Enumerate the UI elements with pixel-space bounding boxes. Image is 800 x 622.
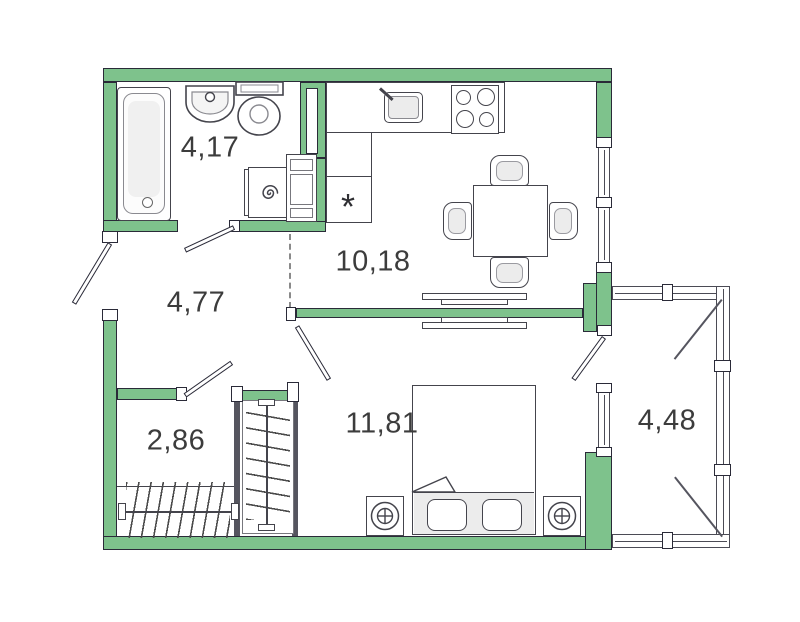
wall-wardrobe-top xyxy=(117,388,178,400)
blanket-fold xyxy=(410,474,458,494)
balcony-glazing-right xyxy=(716,286,730,548)
cabinet-shelf xyxy=(290,208,313,218)
bathtub-basin xyxy=(128,101,160,197)
bathtub-drain xyxy=(142,197,153,208)
cabinet-shelf xyxy=(290,174,313,205)
pillow xyxy=(427,499,467,531)
door-post xyxy=(286,307,296,321)
hangers xyxy=(126,482,230,538)
room-area-label-hallway: 4,77 xyxy=(167,287,225,320)
table-lamp-icon xyxy=(368,499,402,533)
dining-table xyxy=(473,185,548,257)
window-post xyxy=(596,137,612,148)
chair-seat xyxy=(448,208,466,234)
table-lamp-icon xyxy=(545,499,579,533)
stove-burner xyxy=(479,112,494,127)
room-area-label-balcony: 4,48 xyxy=(638,405,696,438)
wall-right-mid xyxy=(596,272,612,332)
rod-bracket xyxy=(258,524,275,531)
kitchen-window xyxy=(598,147,610,198)
window-post xyxy=(596,197,612,208)
wall-right-lower xyxy=(585,452,612,550)
room-area-label-bedroom: 11,81 xyxy=(346,408,419,441)
room-area-label-wardrobe: 2,86 xyxy=(147,425,205,458)
bedroom-window xyxy=(598,392,610,448)
washing-machine-door xyxy=(244,169,249,216)
glazing-post xyxy=(662,284,673,301)
ventilation-shaft xyxy=(306,88,318,154)
rod-bracket xyxy=(118,503,126,520)
radiator xyxy=(422,322,527,329)
room-area-label-bathroom: 4,17 xyxy=(181,132,239,165)
kitchen-window xyxy=(598,207,610,263)
wall-kitchen-bedroom-divider xyxy=(296,308,583,318)
wall-kitchen-left-strip xyxy=(316,158,326,222)
radiator xyxy=(441,299,508,305)
entrance-door-leaf xyxy=(72,242,112,305)
window-post xyxy=(596,383,612,393)
rod-bracket xyxy=(231,503,239,520)
toilet xyxy=(234,80,286,140)
stove-burner xyxy=(456,110,474,128)
washing-machine-drum-icon xyxy=(257,181,281,205)
wall-top xyxy=(103,68,612,82)
door-post xyxy=(102,231,118,243)
wall-right-upper xyxy=(596,82,612,140)
chair-seat xyxy=(496,161,523,181)
kitchen-unit-asterisk: * xyxy=(341,186,355,228)
door-post xyxy=(597,325,612,336)
glazing-post xyxy=(714,464,731,476)
cabinet-shelf xyxy=(290,159,313,171)
floor-plan: 4,17 4,77 10,18 2,86 11,81 4,48 * xyxy=(0,0,800,622)
stove-burner xyxy=(477,88,495,106)
counter-cell-line xyxy=(327,176,371,177)
glazing-post xyxy=(714,360,731,372)
room-area-label-kitchen: 10,18 xyxy=(335,246,410,279)
chair-seat xyxy=(496,263,523,283)
wall-left-lower xyxy=(103,312,117,550)
stove-burner xyxy=(456,90,471,105)
hanger-rod xyxy=(124,511,234,513)
window-post xyxy=(596,447,612,457)
rod-bracket xyxy=(258,399,275,406)
door-post xyxy=(102,309,118,321)
wall-bottom xyxy=(103,536,612,550)
kitchen-zone-dashed-line xyxy=(289,234,291,308)
glazing-post xyxy=(662,532,673,549)
door-post xyxy=(287,382,299,402)
door-post xyxy=(231,386,243,402)
bathroom-door-leaf xyxy=(184,225,235,252)
wardrobe-door-leaf xyxy=(184,361,234,398)
bathroom-sink xyxy=(183,84,237,128)
window-post xyxy=(596,262,612,273)
hanger-rod-vertical xyxy=(266,404,268,528)
balcony-door-leaf xyxy=(571,336,606,381)
bedroom-door-leaf xyxy=(295,325,331,381)
wall-left-upper xyxy=(103,82,117,232)
chair-seat xyxy=(554,208,572,234)
pillow xyxy=(482,499,522,531)
hangers xyxy=(246,410,290,520)
